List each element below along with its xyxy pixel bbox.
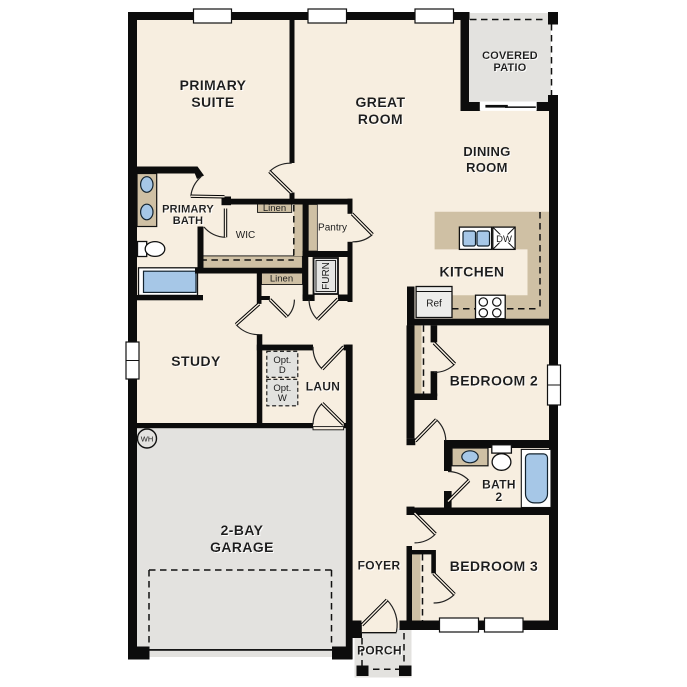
svg-text:PATIO: PATIO — [494, 62, 527, 74]
svg-text:COVERED: COVERED — [482, 50, 538, 62]
svg-text:Pantry: Pantry — [318, 223, 347, 234]
svg-text:PRIMARY: PRIMARY — [180, 77, 247, 93]
svg-text:DW: DW — [496, 234, 512, 245]
svg-text:GARAGE: GARAGE — [210, 539, 274, 555]
svg-text:FURN: FURN — [321, 262, 332, 290]
svg-text:D: D — [279, 365, 286, 376]
svg-text:KITCHEN: KITCHEN — [439, 264, 504, 280]
svg-text:WH: WH — [141, 435, 154, 444]
svg-text:GREAT: GREAT — [356, 94, 406, 110]
svg-text:2: 2 — [496, 490, 503, 504]
svg-text:SUITE: SUITE — [191, 94, 234, 110]
svg-text:PORCH: PORCH — [357, 644, 402, 658]
svg-text:FOYER: FOYER — [358, 559, 401, 573]
svg-text:Linen: Linen — [270, 274, 293, 285]
svg-text:2-BAY: 2-BAY — [221, 522, 264, 538]
svg-text:PRIMARY: PRIMARY — [162, 204, 214, 216]
svg-text:STUDY: STUDY — [171, 353, 221, 369]
svg-text:W: W — [278, 393, 287, 404]
svg-text:ROOM: ROOM — [466, 160, 508, 175]
svg-text:BEDROOM 2: BEDROOM 2 — [450, 373, 538, 389]
svg-text:Linen: Linen — [263, 203, 286, 214]
svg-text:DINING: DINING — [463, 144, 510, 159]
svg-text:WIC: WIC — [236, 230, 255, 241]
svg-text:Ref: Ref — [426, 299, 442, 310]
svg-text:BEDROOM 3: BEDROOM 3 — [450, 558, 538, 574]
svg-text:LAUN: LAUN — [306, 380, 341, 394]
svg-text:BATH: BATH — [173, 215, 204, 227]
svg-text:ROOM: ROOM — [358, 111, 403, 127]
